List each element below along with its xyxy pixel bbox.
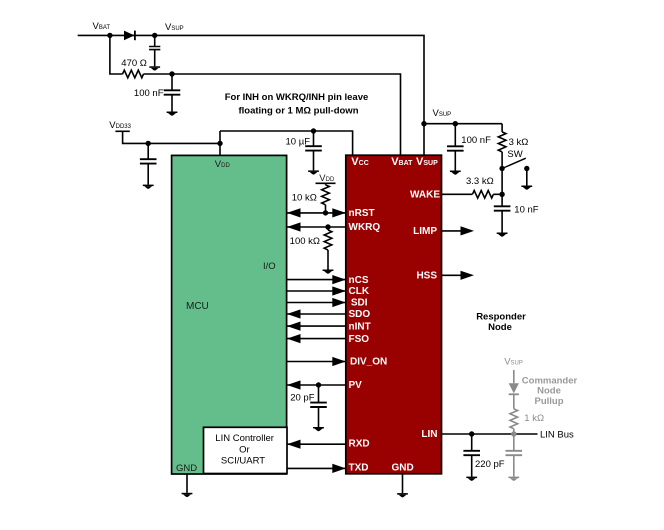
svg-text:SDI: SDI [351,298,368,309]
svg-text:3.3 kΩ: 3.3 kΩ [466,176,494,187]
svg-text:TXD: TXD [349,463,369,474]
svg-text:WAKE: WAKE [410,190,440,201]
svg-text:WKRQ: WKRQ [349,222,381,233]
svg-text:470 Ω: 470 Ω [121,58,147,69]
svg-text:LIMP: LIMP [413,226,437,237]
svg-text:MCU: MCU [186,301,209,312]
svg-text:10 µF: 10 µF [286,136,311,147]
svg-text:SCI/UART: SCI/UART [221,456,265,467]
svg-text:Node: Node [488,322,512,333]
svg-text:10 nF: 10 nF [514,205,538,216]
svg-text:LIN Bus: LIN Bus [540,429,574,440]
svg-text:Pullup: Pullup [534,396,563,407]
svg-text:10 kΩ: 10 kΩ [292,193,317,204]
svg-text:3 kΩ: 3 kΩ [509,137,529,148]
svg-text:RXD: RXD [349,438,370,449]
svg-text:DIV_ON: DIV_ON [350,357,387,368]
svg-text:I/O: I/O [263,261,276,272]
svg-text:GND: GND [392,463,414,474]
svg-text:Or: Or [239,444,250,455]
svg-text:CLK: CLK [349,286,370,297]
svg-text:LIN: LIN [421,429,437,440]
svg-text:220 pF: 220 pF [475,459,505,470]
svg-text:nINT: nINT [349,321,371,332]
svg-text:nCS: nCS [349,275,369,286]
svg-text:PV: PV [349,380,363,391]
svg-text:GND: GND [176,463,197,474]
svg-text:1 kΩ: 1 kΩ [524,413,544,424]
svg-text:20 pF: 20 pF [290,393,314,404]
svg-text:Responder: Responder [476,311,526,322]
svg-text:SDO: SDO [349,309,371,320]
svg-text:HSS: HSS [416,271,437,282]
svg-text:100 kΩ: 100 kΩ [290,236,320,247]
svg-text:100 nF: 100 nF [134,88,164,99]
svg-text:For INH on WKRQ/INH pin leave: For INH on WKRQ/INH pin leave [225,92,369,103]
svg-text:SW: SW [507,149,522,160]
svg-text:floating or 1 MΩ pull-down: floating or 1 MΩ pull-down [238,106,358,117]
svg-text:100 nF: 100 nF [461,135,491,146]
svg-text:nRST: nRST [349,208,375,219]
svg-text:FSO: FSO [349,334,370,345]
svg-text:LIN Controller: LIN Controller [215,433,274,444]
